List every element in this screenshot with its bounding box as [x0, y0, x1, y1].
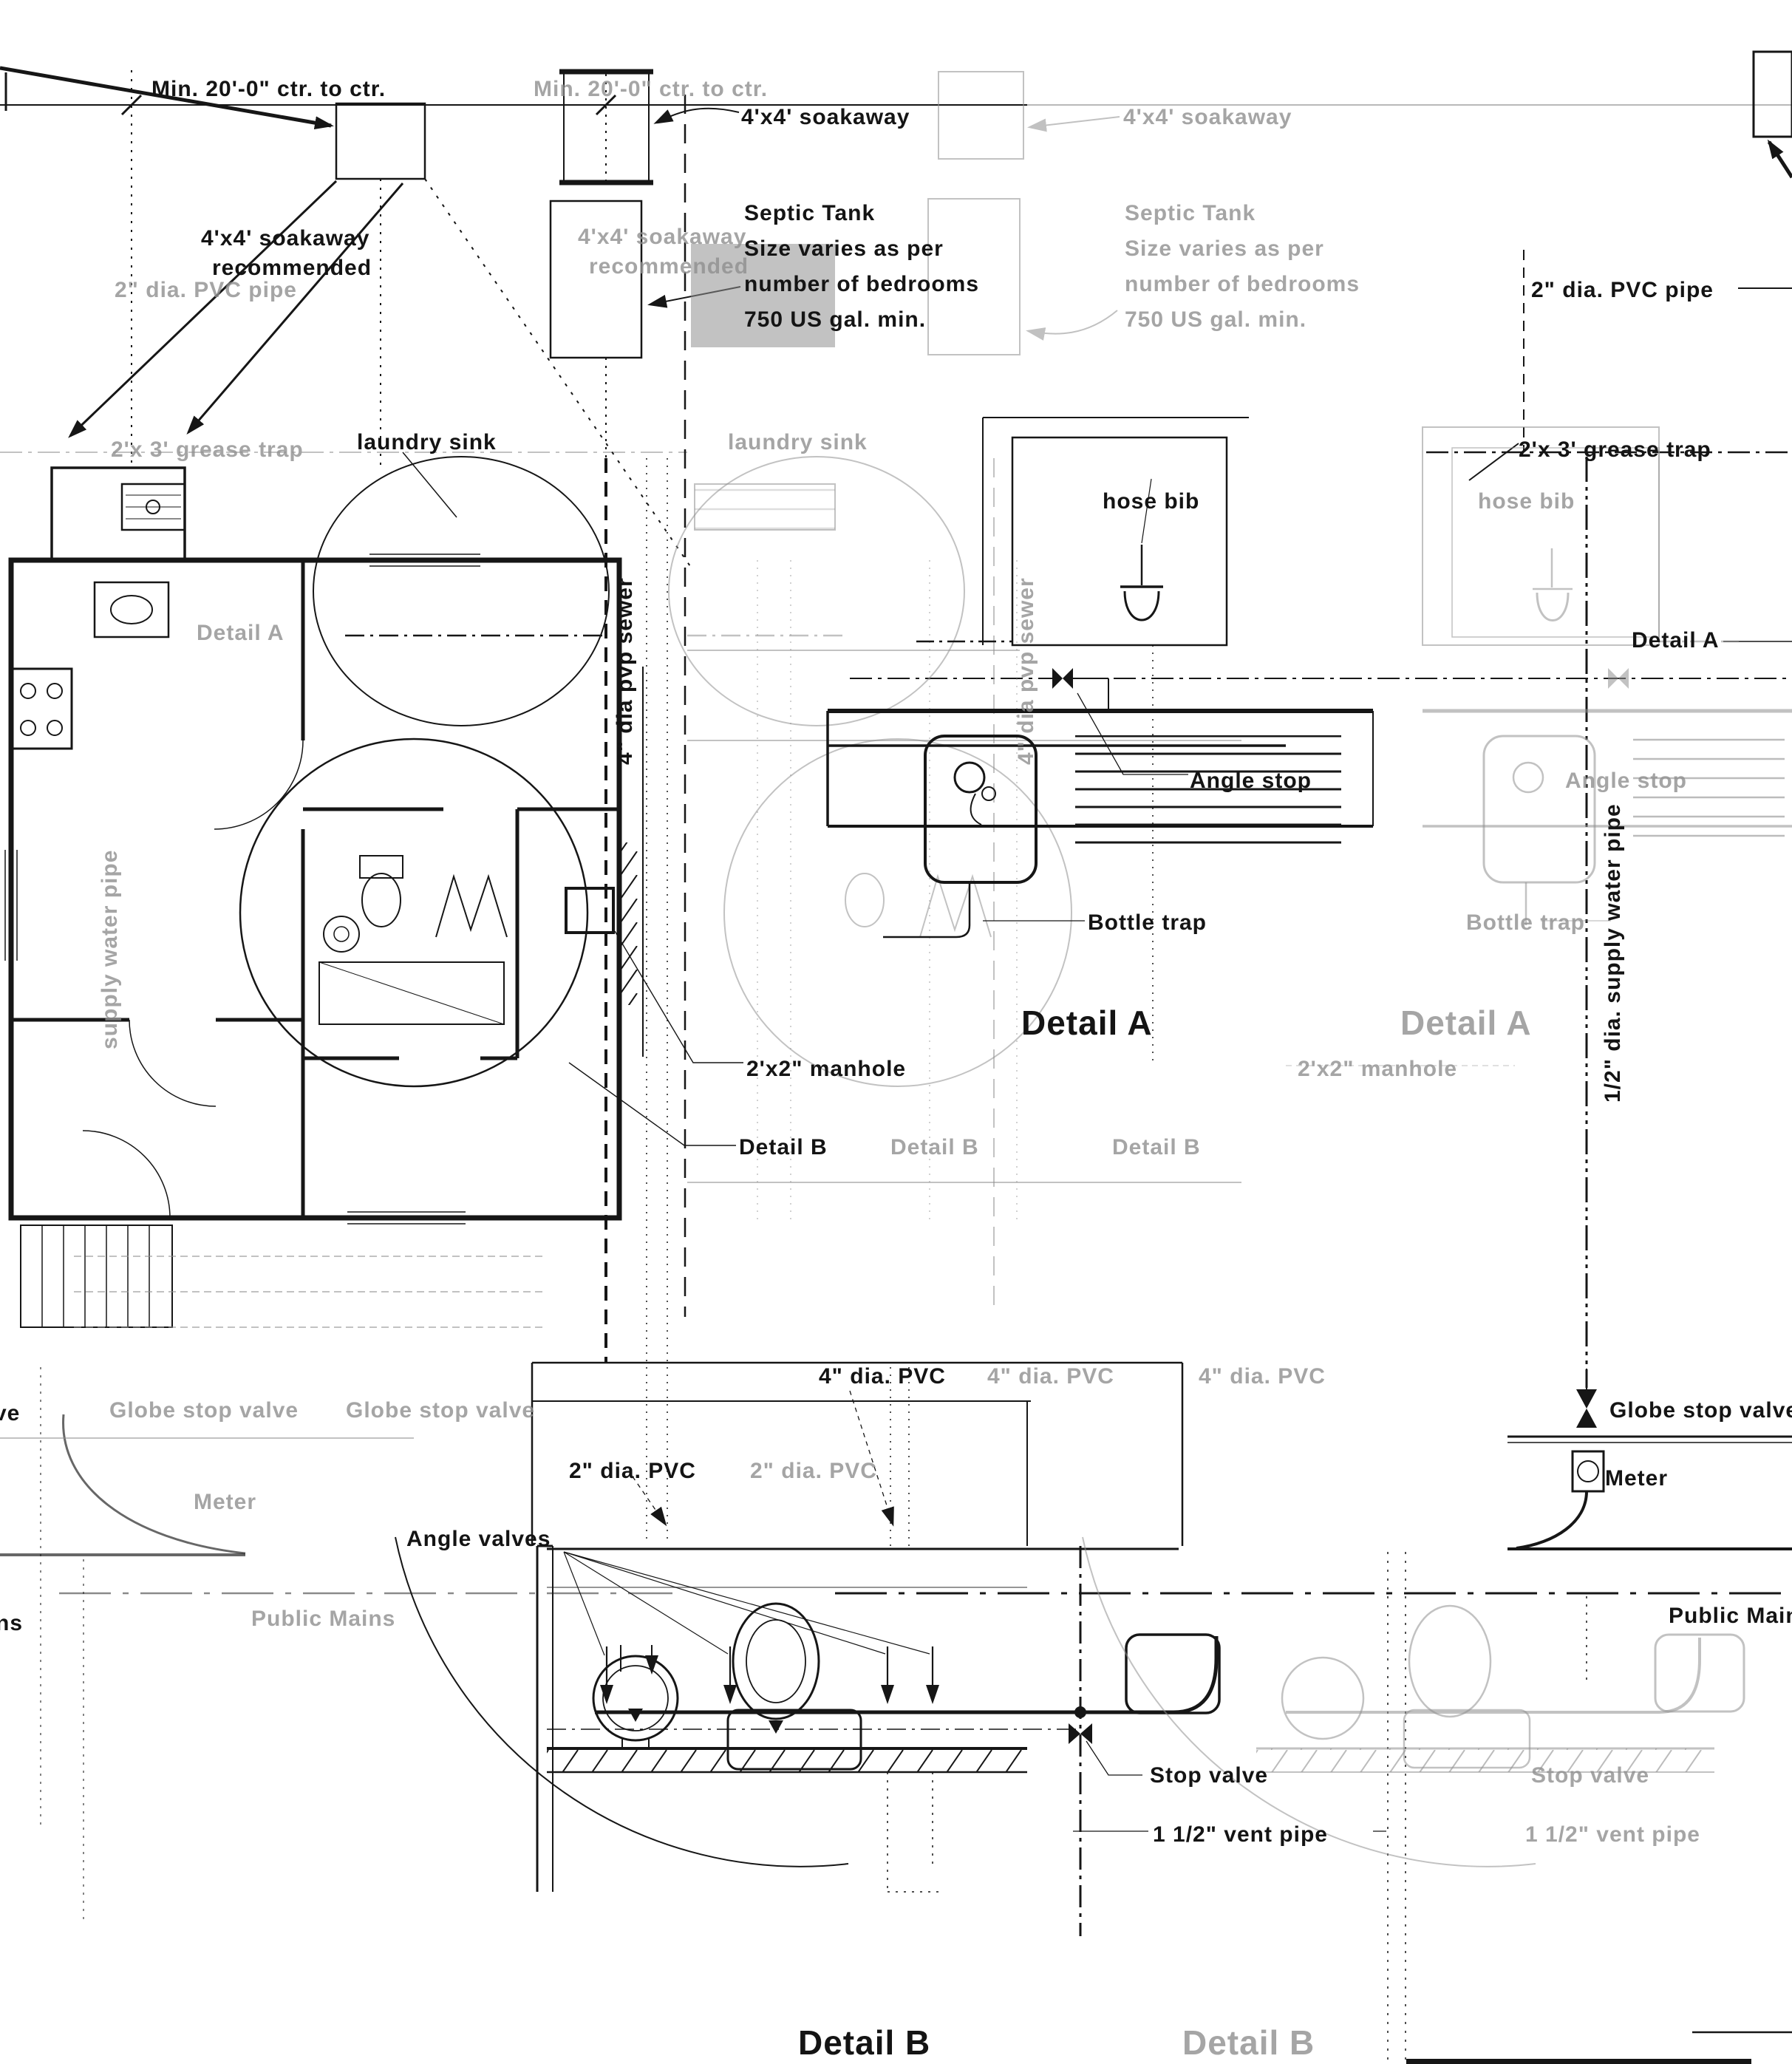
soakaway-box-1	[336, 103, 425, 179]
soakaway-box-ghost	[938, 72, 1023, 159]
label-meter-ghost: Meter	[194, 1490, 256, 1514]
label-detail-b-ghost-1: Detail B	[890, 1135, 979, 1159]
label-soakaway-rec-2: recommended	[212, 256, 372, 280]
label-detail-b-heading-ghost: Detail B	[1182, 2023, 1315, 2062]
detail-b-ghost	[1083, 1537, 1744, 1867]
label-pvc-4-ghost-1: 4" dia. PVC	[987, 1364, 1114, 1389]
label-septic-4-ghost: 750 US gal. min.	[1125, 307, 1306, 332]
label-soakaway-rec-2-ghost: recommended	[589, 254, 749, 279]
label-stop-valve: Stop valve	[1150, 1763, 1268, 1788]
label-detail-a-plan-ghost: Detail A	[197, 621, 285, 645]
label-min-ctr: Min. 20'-0" ctr. to ctr.	[151, 77, 386, 101]
label-bottle-trap: Bottle trap	[1088, 910, 1207, 935]
label-public-mains-ghost: Public Mains	[251, 1607, 395, 1631]
label-fragment-ve: ve	[0, 1401, 20, 1426]
label-septic-1: Septic Tank	[744, 201, 875, 225]
label-supply-pipe-vertical: 1/2" dia. supply water pipe	[1601, 803, 1625, 1103]
label-soakaway-rec-1: 4'x4' soakaway	[201, 226, 369, 251]
stove	[11, 669, 72, 749]
label-pvc-2: 2" dia. PVC	[569, 1459, 696, 1483]
label-septic-3: number of bedrooms	[744, 272, 979, 296]
label-septic-4: 750 US gal. min.	[744, 307, 926, 332]
label-septic-3-ghost: number of bedrooms	[1125, 272, 1360, 296]
label-soakaway-ghost: 4'x4' soakaway	[1123, 105, 1292, 129]
label-stop-valve-ghost: Stop valve	[1531, 1763, 1649, 1788]
label-supply-short-vertical-ghost: supply water pipe	[98, 850, 122, 1049]
label-detail-b-heading: Detail B	[798, 2023, 930, 2062]
label-sewer-pipe-vertical: 4" dia pvp sewer	[613, 577, 637, 765]
label-globe-stop-ghost-1: Globe stop valve	[109, 1398, 299, 1423]
label-public-mains: Public Mains	[1669, 1604, 1792, 1628]
label-globe-stop-valve: Globe stop valve	[1609, 1398, 1792, 1423]
ghost-floor-plan	[74, 484, 1241, 1327]
label-pvc-2-ghost: 2" dia. PVC	[750, 1459, 877, 1483]
label-vent-pipe: 1 1/2" vent pipe	[1153, 1822, 1328, 1847]
label-pvc-pipe-2in-ghost: 2" dia. PVC pipe	[115, 278, 297, 302]
label-angle-stop-ghost: Angle stop	[1565, 769, 1687, 793]
label-septic-2-ghost: Size varies as per	[1125, 236, 1324, 261]
label-vent-pipe-ghost: 1 1/2" vent pipe	[1525, 1822, 1700, 1847]
toilet-plan	[362, 873, 401, 927]
label-soakaway-rec-1-ghost: 4'x4' soakaway	[578, 225, 746, 249]
label-fragment-ns: ns	[0, 1611, 23, 1635]
bottom-marks	[1406, 2032, 1792, 2064]
label-septic-2: Size varies as per	[744, 236, 944, 261]
label-pvc-4: 4" dia. PVC	[819, 1364, 946, 1389]
basin-plan	[324, 916, 359, 952]
label-bottle-trap-ghost: Bottle trap	[1466, 910, 1585, 935]
globe-stop-valve-symbol	[1576, 1389, 1597, 1409]
label-laundry-sink: laundry sink	[357, 430, 497, 454]
label-angle-valves: Angle valves	[406, 1527, 551, 1551]
label-detail-b-ghost-2: Detail B	[1112, 1135, 1201, 1159]
bottle-trap-symbol	[883, 925, 970, 937]
label-detail-a-heading-ghost: Detail A	[1400, 1004, 1532, 1042]
hose-bib-enclosure	[1012, 437, 1227, 645]
label-pvc-4-ghost-2: 4" dia. PVC	[1199, 1364, 1326, 1389]
kitchen-sink	[95, 582, 168, 637]
detail-a-ghost	[1286, 427, 1792, 1066]
label-soakaway: 4'x4' soakaway	[741, 105, 910, 129]
label-sewer-vertical-ghost: 4" dia pvp sewer	[1014, 577, 1038, 765]
hose-bib-symbol	[1125, 591, 1159, 620]
label-detail-a-heading: Detail A	[1021, 1004, 1153, 1042]
label-pvc-pipe-2in: 2" dia. PVC pipe	[1531, 278, 1714, 302]
label-laundry-sink-ghost: laundry sink	[728, 430, 868, 454]
laundry-callout-circle	[313, 457, 609, 726]
stop-valve-symbol	[1069, 1723, 1080, 1744]
scan-artifact-bar	[1406, 2059, 1751, 2064]
blueprint-canvas: Min. 20'-0" ctr. to ctr. 4'x4' soakaway …	[0, 0, 1792, 2064]
label-hose-bib-ghost: hose bib	[1478, 489, 1575, 514]
label-angle-stop: Angle stop	[1190, 769, 1312, 793]
detail-b-group	[395, 1363, 1406, 2062]
label-detail-a-side: Detail A	[1632, 628, 1720, 653]
label-min-ctr-ghost: Min. 20'-0" ctr. to ctr.	[534, 77, 768, 101]
label-septic-1-ghost: Septic Tank	[1125, 201, 1256, 225]
soakaway-box-top-right	[1754, 52, 1792, 137]
label-manhole-ghost: 2'x2" manhole	[1298, 1057, 1457, 1081]
label-grease-trap: 2'x 3' grease trap	[1519, 437, 1711, 462]
label-hose-bib: hose bib	[1103, 489, 1199, 514]
detail-b-callout-circle	[240, 739, 587, 1086]
blueprint-sheet: Min. 20'-0" ctr. to ctr. 4'x4' soakaway …	[0, 0, 1792, 2064]
laundry-room	[52, 468, 185, 560]
label-grease-trap-ghost: 2'x 3' grease trap	[111, 437, 304, 462]
label-globe-stop-ghost-2: Globe stop valve	[346, 1398, 535, 1423]
label-manhole: 2'x2" manhole	[746, 1057, 906, 1081]
label-meter: Meter	[1605, 1466, 1668, 1491]
label-detail-b-callout: Detail B	[739, 1135, 828, 1159]
